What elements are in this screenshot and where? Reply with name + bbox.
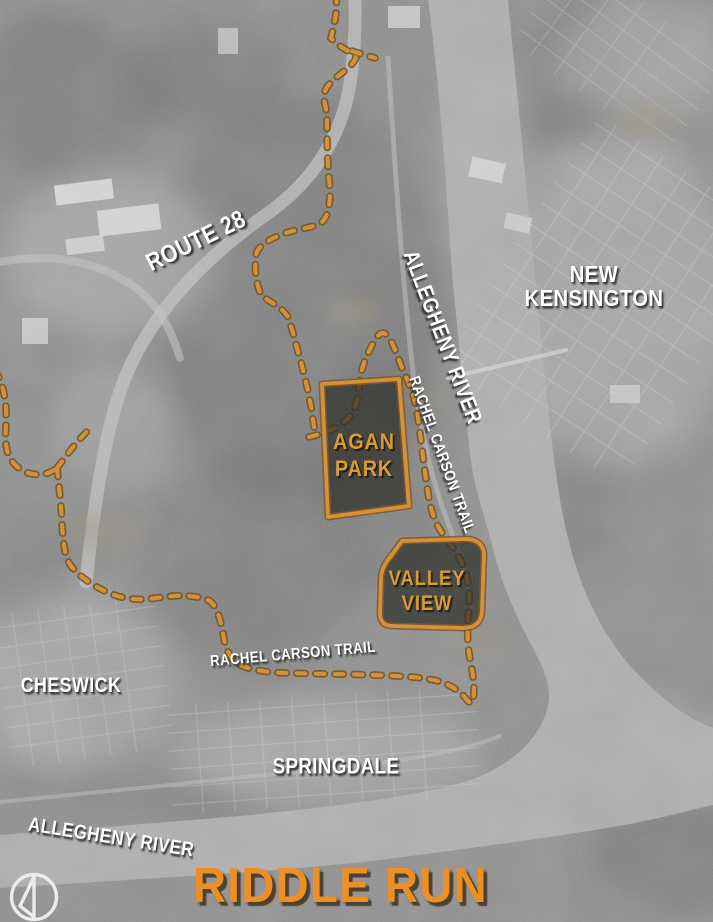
agan-park-line2: PARK <box>333 455 395 482</box>
riddle-run-valley-map: ROUTE 28 ALLEGHENY RIVER NEW KENSINGTON … <box>0 0 713 922</box>
cheswick-label: CHESWICK <box>21 675 122 697</box>
springdale-label: SPRINGDALE <box>273 754 400 777</box>
new-kensington-line2: KENSINGTON <box>525 286 664 310</box>
new-kensington-label: NEW KENSINGTON <box>525 262 664 310</box>
valley-view-label: VALLEY VIEW <box>389 567 466 617</box>
valley-view-line2: VIEW <box>389 592 466 617</box>
agan-park-label: AGAN PARK <box>333 428 395 482</box>
new-kensington-line1: NEW <box>525 262 664 286</box>
valley-view-line1: VALLEY <box>389 567 466 592</box>
agan-park-line1: AGAN <box>333 428 395 455</box>
map-title: RIDDLE RUN VALLEY <box>193 858 677 922</box>
